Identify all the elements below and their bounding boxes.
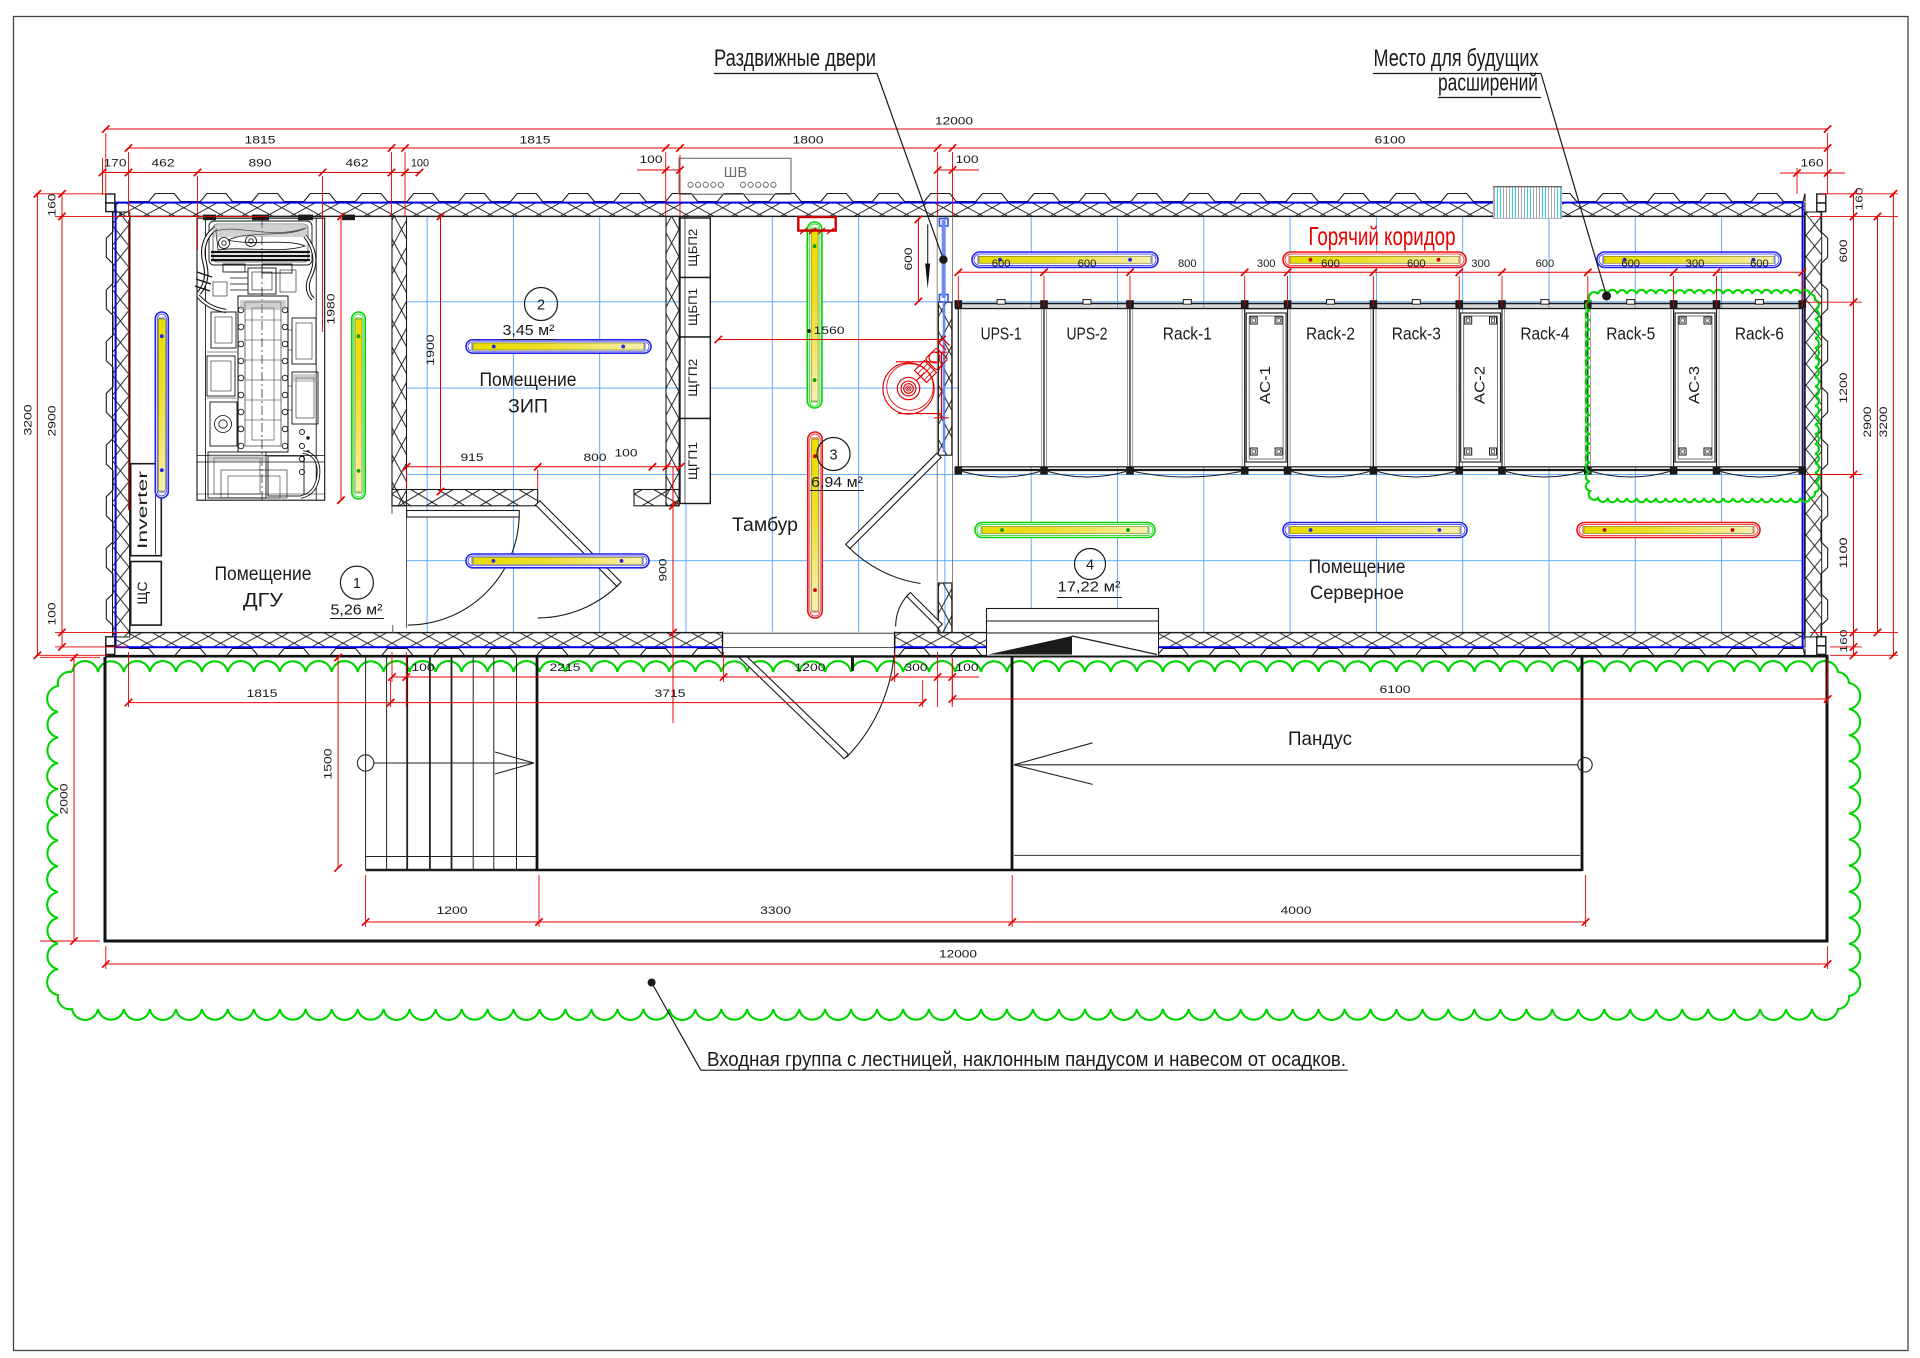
svg-text:2215: 2215 — [550, 662, 581, 674]
svg-text:1815: 1815 — [247, 688, 278, 700]
svg-text:ЩГП2: ЩГП2 — [688, 359, 700, 397]
svg-text:1100: 1100 — [1838, 538, 1850, 569]
svg-text:6,94 м²: 6,94 м² — [811, 474, 863, 491]
svg-text:2900: 2900 — [47, 406, 59, 437]
svg-text:100: 100 — [640, 154, 663, 166]
svg-text:1560: 1560 — [814, 325, 845, 337]
svg-text:462: 462 — [152, 158, 175, 170]
svg-text:Входная группа с лестницей, на: Входная группа с лестницей, наклонным па… — [707, 1048, 1346, 1071]
svg-text:3300: 3300 — [760, 905, 791, 917]
svg-text:3,45 м²: 3,45 м² — [503, 322, 555, 339]
svg-text:4: 4 — [1086, 558, 1094, 574]
svg-text:300: 300 — [1471, 258, 1490, 270]
svg-text:6100: 6100 — [1375, 135, 1406, 147]
svg-text:Тамбур: Тамбур — [732, 514, 798, 536]
svg-text:ЗИП: ЗИП — [508, 396, 548, 418]
svg-text:600: 600 — [1078, 258, 1097, 270]
svg-text:ДГУ: ДГУ — [243, 590, 284, 612]
svg-text:UPS-1: UPS-1 — [981, 324, 1022, 344]
svg-text:4000: 4000 — [1281, 905, 1312, 917]
svg-text:100: 100 — [615, 448, 638, 460]
svg-text:UPS-2: UPS-2 — [1067, 324, 1108, 344]
svg-text:1: 1 — [353, 576, 361, 592]
svg-text:300: 300 — [905, 662, 928, 674]
svg-text:2000: 2000 — [59, 784, 71, 815]
svg-text:890: 890 — [249, 158, 272, 170]
svg-text:1500: 1500 — [323, 749, 335, 780]
svg-text:Rack-4: Rack-4 — [1520, 324, 1569, 344]
svg-text:ЩБП2: ЩБП2 — [688, 229, 700, 267]
svg-text:915: 915 — [461, 452, 484, 464]
svg-text:900: 900 — [658, 559, 670, 582]
svg-text:ЩС: ЩС — [134, 581, 150, 604]
svg-text:AC-1: AC-1 — [1257, 366, 1274, 404]
svg-text:Горячий коридор: Горячий коридор — [1309, 221, 1456, 251]
svg-text:3: 3 — [829, 448, 837, 464]
svg-text:100: 100 — [956, 662, 979, 674]
svg-text:5,26 м²: 5,26 м² — [331, 602, 383, 619]
svg-text:800: 800 — [1178, 258, 1197, 270]
svg-text:160: 160 — [47, 194, 59, 217]
svg-text:1200: 1200 — [1838, 373, 1850, 404]
svg-text:Rack-1: Rack-1 — [1163, 324, 1212, 344]
svg-text:462: 462 — [346, 158, 369, 170]
svg-text:600: 600 — [1838, 240, 1850, 263]
svg-text:2: 2 — [537, 298, 545, 314]
svg-text:1815: 1815 — [520, 135, 551, 147]
svg-text:6100: 6100 — [1380, 684, 1411, 696]
svg-text:600: 600 — [992, 258, 1011, 270]
svg-text:170: 170 — [104, 158, 127, 170]
svg-text:1815: 1815 — [245, 135, 276, 147]
svg-text:300: 300 — [1686, 258, 1705, 270]
svg-text:Место для будущих: Место для будущих — [1374, 45, 1539, 72]
svg-text:Помещение: Помещение — [480, 369, 577, 391]
svg-text:17,22 м²: 17,22 м² — [1058, 579, 1121, 596]
svg-text:Rack-2: Rack-2 — [1306, 324, 1355, 344]
svg-text:100: 100 — [411, 158, 429, 170]
svg-text:Помещение: Помещение — [215, 563, 312, 585]
svg-text:3200: 3200 — [1878, 407, 1890, 438]
svg-text:600: 600 — [1750, 258, 1769, 270]
svg-text:2900: 2900 — [1862, 407, 1874, 438]
svg-text:300: 300 — [1257, 258, 1276, 270]
svg-text:600: 600 — [1536, 258, 1555, 270]
svg-text:AC-3: AC-3 — [1686, 366, 1703, 404]
svg-text:ЩБП1: ЩБП1 — [688, 288, 700, 326]
svg-text:160: 160 — [1854, 187, 1866, 210]
svg-text:800: 800 — [584, 452, 607, 464]
svg-text:600: 600 — [1407, 258, 1426, 270]
svg-text:Rack-6: Rack-6 — [1735, 324, 1784, 344]
svg-text:100: 100 — [956, 154, 979, 166]
svg-text:100: 100 — [412, 662, 435, 674]
svg-text:Inverter: Inverter — [135, 470, 150, 549]
svg-text:ШВ: ШВ — [724, 164, 748, 181]
svg-text:1200: 1200 — [795, 662, 826, 674]
svg-text:Rack-5: Rack-5 — [1606, 324, 1655, 344]
svg-text:1980: 1980 — [326, 294, 338, 325]
svg-text:Раздвижные двери: Раздвижные двери — [714, 45, 876, 72]
svg-text:160: 160 — [1801, 158, 1824, 170]
svg-text:600: 600 — [903, 248, 915, 271]
svg-text:12000: 12000 — [939, 949, 977, 961]
svg-text:Помещение: Помещение — [1309, 556, 1406, 578]
svg-text:ЩГП1: ЩГП1 — [688, 442, 700, 480]
svg-text:1900: 1900 — [425, 335, 437, 366]
svg-text:100: 100 — [47, 603, 59, 626]
svg-text:Rack-3: Rack-3 — [1392, 324, 1441, 344]
svg-text:3200: 3200 — [23, 405, 35, 436]
svg-text:1800: 1800 — [793, 135, 824, 147]
svg-text:Серверное: Серверное — [1310, 582, 1404, 604]
svg-text:3715: 3715 — [655, 688, 686, 700]
svg-text:600: 600 — [1621, 258, 1640, 270]
svg-text:AC-2: AC-2 — [1472, 366, 1489, 404]
svg-text:12000: 12000 — [935, 116, 973, 128]
svg-text:600: 600 — [1321, 258, 1340, 270]
svg-text:1200: 1200 — [437, 905, 468, 917]
svg-text:Пандус: Пандус — [1288, 728, 1352, 750]
